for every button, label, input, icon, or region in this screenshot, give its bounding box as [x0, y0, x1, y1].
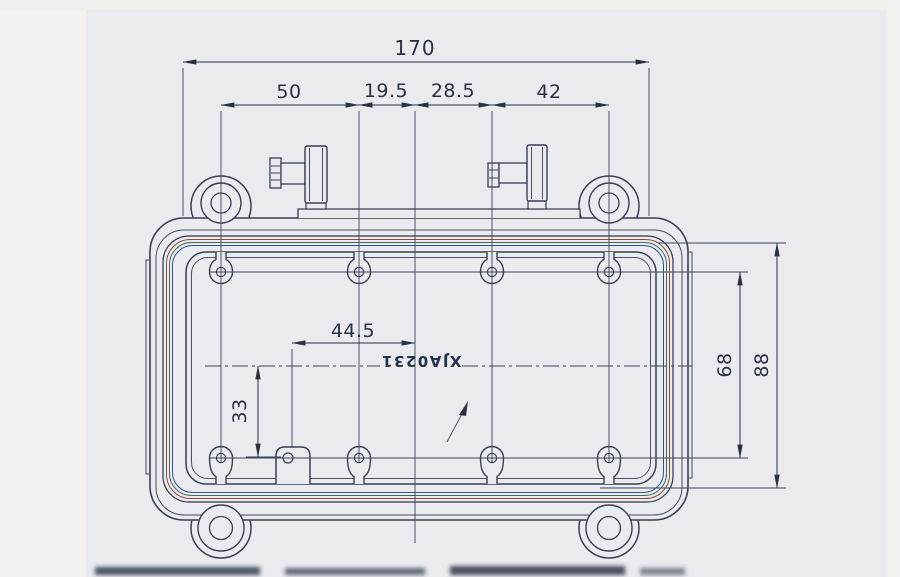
dim-text-42: 42 — [536, 81, 561, 103]
enclosure-drawing: XJA0231 170 50 19.5 28.5 42 — [0, 0, 900, 577]
dim-text-50: 50 — [276, 81, 301, 103]
dim-text-170: 170 — [394, 36, 435, 60]
dim-text-88: 88 — [751, 352, 773, 377]
gland1-body — [305, 146, 327, 203]
gland2-stem — [499, 163, 527, 183]
gland-platform — [298, 209, 580, 218]
dim-text-68: 68 — [714, 352, 736, 377]
lug-hole-bottom-left — [210, 517, 233, 540]
dim-text-28-5: 28.5 — [431, 80, 475, 102]
dim-text-33: 33 — [229, 398, 251, 423]
paper-top-band — [0, 0, 900, 10]
gland1-stem — [281, 163, 305, 184]
part-number-label: XJA0231 — [380, 352, 461, 370]
gland2-body — [527, 145, 547, 201]
paper-right-band — [886, 0, 900, 577]
square-boss — [276, 447, 310, 484]
lug-hole-bottom-right — [598, 517, 621, 540]
dim-text-19-5: 19.5 — [364, 80, 408, 102]
paper-left-band — [0, 0, 86, 577]
dim-text-44-5: 44.5 — [331, 320, 375, 342]
scanned-drawing-page: XJA0231 170 50 19.5 28.5 42 — [0, 0, 900, 577]
gland2-nut — [488, 163, 499, 187]
